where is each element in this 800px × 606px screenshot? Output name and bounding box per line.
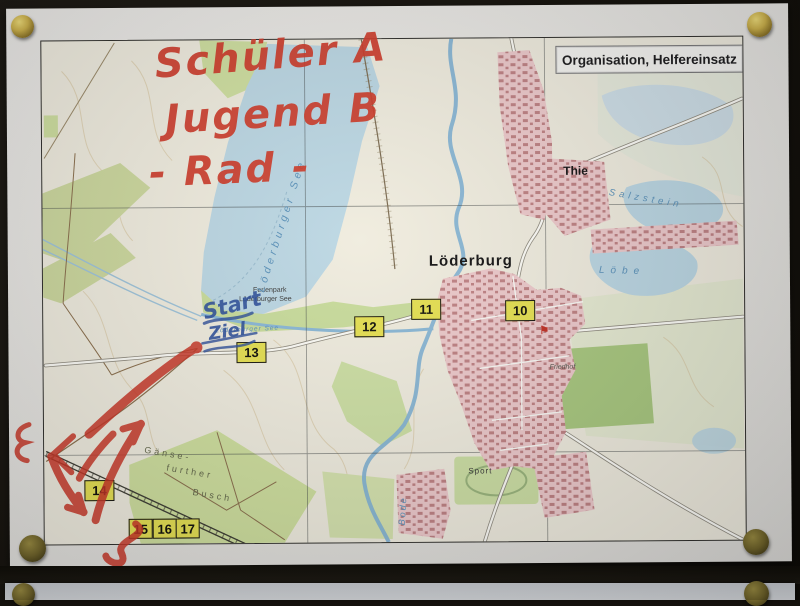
waypoint-16: 16 [153, 519, 177, 539]
pin-bottom-right [743, 529, 769, 555]
board-gap [0, 566, 800, 584]
town-label: Löderburg [401, 252, 541, 270]
waypoint-15: 15 [129, 519, 153, 539]
red-note-rad: - Rad - [148, 144, 311, 197]
waypoint-14: 14 [84, 480, 114, 501]
river-name-label: Bode [397, 496, 409, 526]
pin-top-left [11, 15, 34, 38]
map-linework [41, 37, 745, 545]
pin-second-sheet-left [12, 583, 35, 606]
photo-of-pinned-map: Löderburg Thie Ferienpark Löderburger Se… [0, 0, 800, 600]
organisation-label-text: Organisation, Helfereinsatz [562, 51, 737, 67]
organisation-label-box: Organisation, Helfereinsatz [555, 45, 743, 74]
lake-e-label: Löbe [599, 265, 646, 277]
cemetery-label: Friedhof [550, 364, 576, 371]
waypoint-13: 13 [236, 342, 266, 363]
map-frame: Löderburg Thie Ferienpark Löderburger Se… [40, 36, 747, 546]
waypoint-12: 12 [354, 316, 384, 337]
second-sheet-edge [5, 583, 795, 600]
pin-bottom-left [19, 535, 46, 562]
map-sheet-paper: Löderburg Thie Ferienpark Löderburger Se… [6, 3, 792, 566]
sport-label: Sport [468, 466, 492, 475]
hamlet-label: Thie [563, 164, 588, 178]
pin-second-sheet-right [744, 581, 769, 606]
waypoint-17: 17 [176, 518, 200, 538]
red-landmark-symbol: ⚑ [539, 324, 549, 337]
waypoint-10: 10 [505, 300, 535, 321]
waypoint-11: 11 [411, 299, 441, 320]
pin-top-right [747, 12, 772, 37]
